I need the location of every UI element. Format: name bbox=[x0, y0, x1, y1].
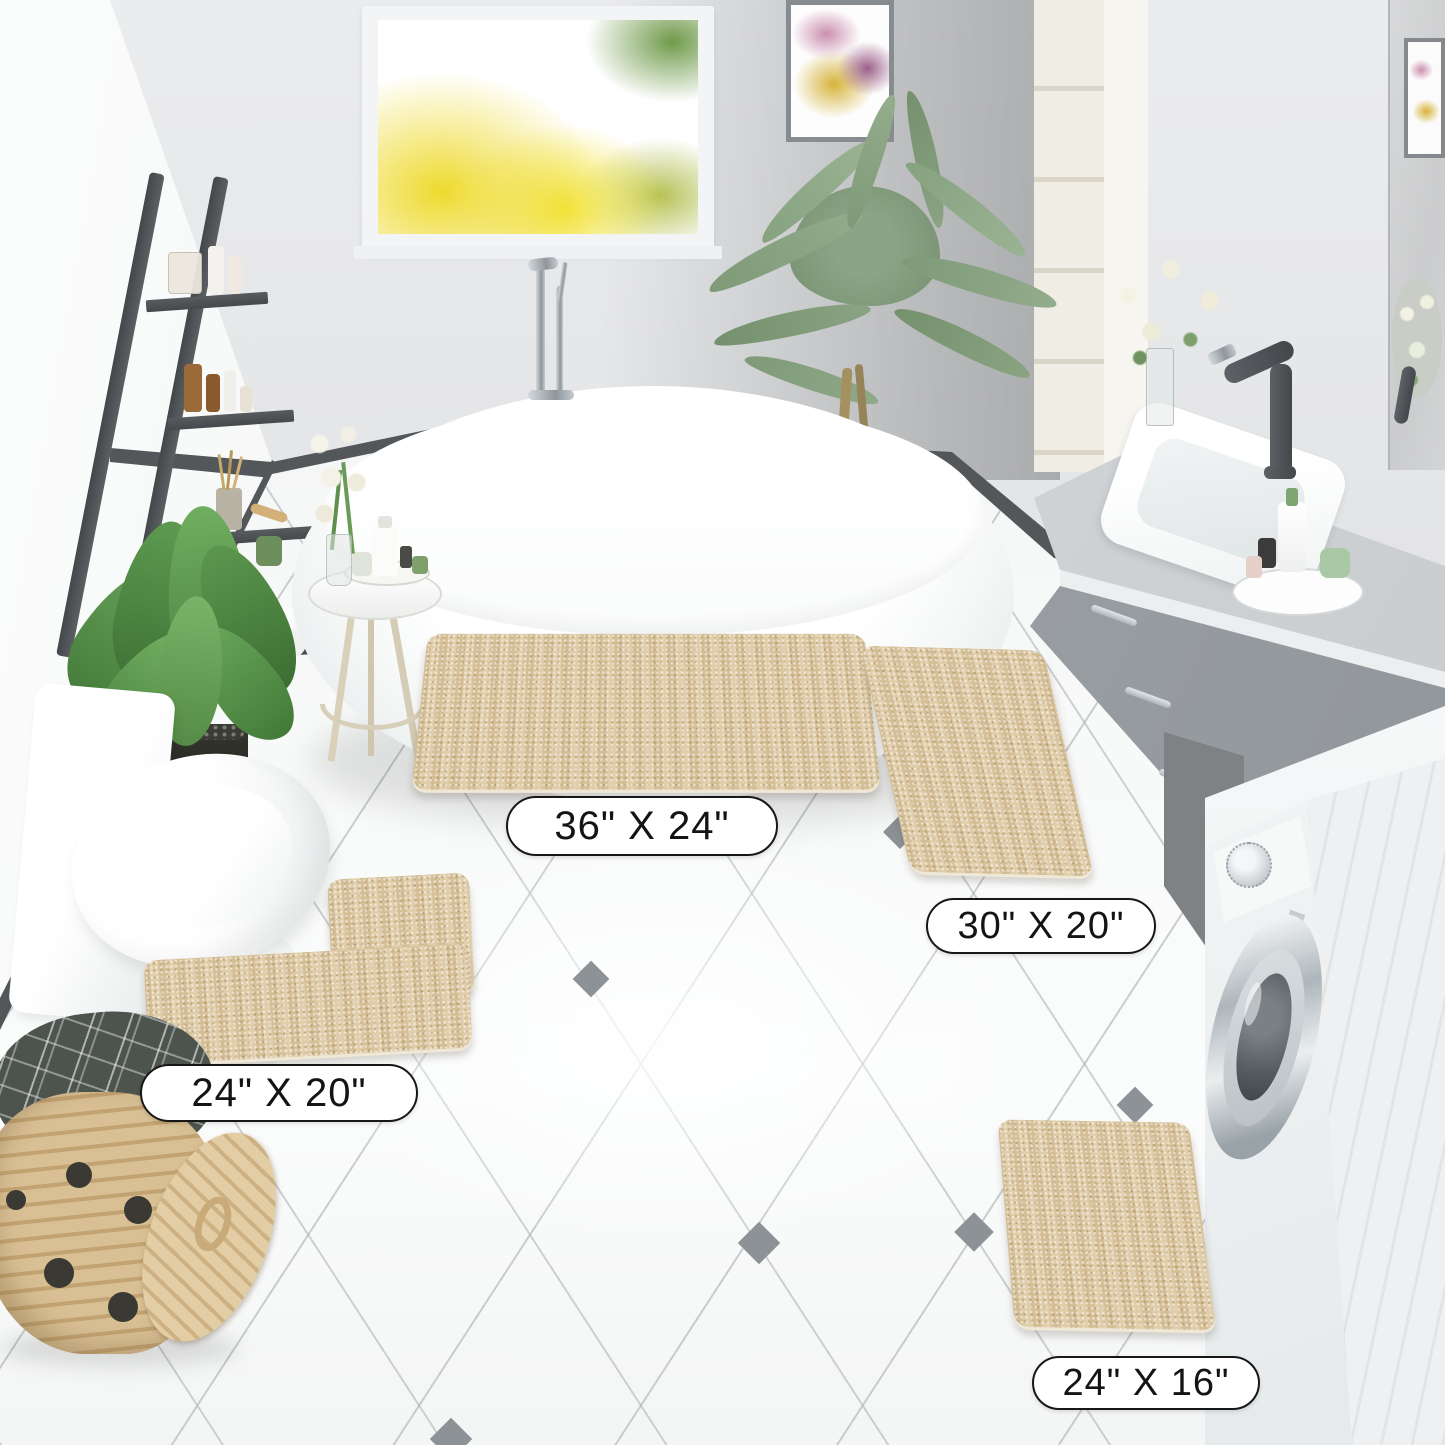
cream-jar bbox=[352, 552, 372, 576]
size-label-contour-rug: 24" X 20" bbox=[140, 1064, 418, 1122]
amber-bottle bbox=[206, 374, 220, 412]
gladiolus-flowers bbox=[296, 420, 380, 540]
amber-bottle bbox=[184, 364, 202, 412]
size-label-large-rug: 36" X 24" bbox=[506, 796, 778, 856]
window bbox=[362, 6, 714, 252]
sink-faucet-base bbox=[1264, 466, 1296, 479]
basket-dot bbox=[44, 1258, 74, 1288]
bathroom-scene: 36" X 24" 30" X 20" 24" X 20" 24" X 16" bbox=[0, 0, 1445, 1445]
small-bottle bbox=[240, 386, 252, 412]
white-bottle bbox=[228, 256, 242, 294]
tub-faucet-base bbox=[528, 390, 574, 400]
table-leg bbox=[368, 614, 374, 756]
dark-vial bbox=[400, 546, 412, 568]
pump-top bbox=[378, 516, 392, 528]
mirror-reflected-art bbox=[1404, 38, 1445, 158]
basket-dot bbox=[108, 1292, 138, 1322]
window-glass-autumn-trees bbox=[378, 20, 698, 234]
sink-faucet-body bbox=[1270, 364, 1292, 474]
glass-jar bbox=[168, 252, 202, 294]
green-pot bbox=[412, 556, 428, 574]
basket-dot bbox=[6, 1190, 26, 1210]
vanity-flower-vase bbox=[1146, 348, 1174, 426]
white-bottle bbox=[208, 246, 224, 294]
basket-dot bbox=[66, 1162, 92, 1188]
small-jar bbox=[1246, 556, 1262, 578]
tub-faucet-pipe bbox=[536, 268, 545, 398]
size-label-runner-rug: 30" X 20" bbox=[926, 898, 1156, 954]
large-rug bbox=[412, 634, 881, 790]
window-sill bbox=[354, 246, 722, 259]
lotion-bottle bbox=[1278, 502, 1306, 572]
tub-faucet-pipe bbox=[556, 286, 563, 398]
green-jar bbox=[1320, 548, 1350, 578]
washer-dial bbox=[1226, 842, 1272, 888]
size-label-small-rug: 24" X 16" bbox=[1032, 1356, 1260, 1410]
white-tube bbox=[224, 370, 236, 412]
green-canister bbox=[256, 536, 282, 566]
glass-vase bbox=[326, 534, 352, 586]
tall-cabinet-edge bbox=[1104, 0, 1148, 474]
small-rug bbox=[998, 1120, 1217, 1331]
lotion-pump bbox=[1286, 488, 1298, 506]
basket-dot bbox=[124, 1196, 152, 1224]
tall-cabinet bbox=[1034, 0, 1108, 472]
